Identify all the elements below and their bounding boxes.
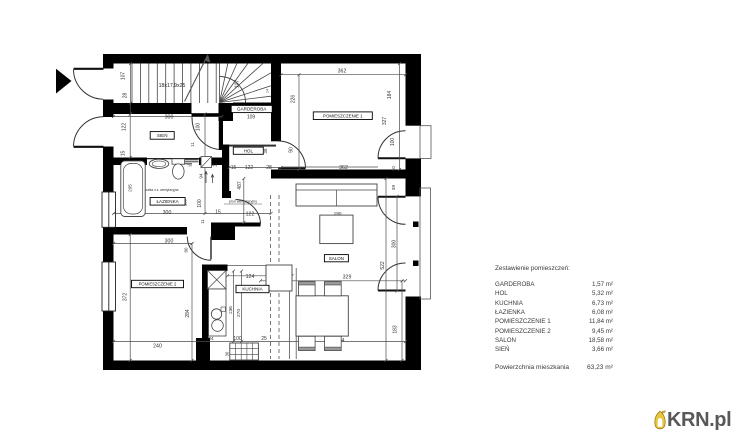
svg-text:107: 107 <box>121 72 127 81</box>
svg-text:POMIESZCZENIE 1: POMIESZCZENIE 1 <box>323 113 363 118</box>
svg-text:28: 28 <box>123 93 129 99</box>
svg-text:487: 487 <box>237 181 243 190</box>
svg-text:122: 122 <box>246 212 255 218</box>
svg-text:124: 124 <box>246 274 255 280</box>
svg-text:39: 39 <box>391 185 396 191</box>
svg-text:SALON: SALON <box>329 256 344 261</box>
svg-text:327: 327 <box>382 117 388 126</box>
svg-text:100: 100 <box>390 138 396 147</box>
svg-text:122: 122 <box>245 165 254 171</box>
svg-text:100: 100 <box>197 199 203 208</box>
svg-text:T98: T98 <box>187 164 192 168</box>
svg-text:28: 28 <box>266 165 272 171</box>
svg-text:205: 205 <box>128 184 133 192</box>
svg-text:107: 107 <box>235 80 241 89</box>
svg-text:44: 44 <box>212 163 217 168</box>
svg-text:kratka o.s. wentylacyjna: kratka o.s. wentylacyjna <box>145 188 179 192</box>
svg-text:300: 300 <box>165 115 174 121</box>
svg-text:329: 329 <box>343 275 352 281</box>
svg-text:100: 100 <box>233 336 242 342</box>
svg-text:pion wentylacyjny: pion wentylacyjny <box>229 200 257 204</box>
svg-text:SIEŃ: SIEŃ <box>157 132 168 138</box>
svg-text:POMIESZCZENIE 2: POMIESZCZENIE 2 <box>139 282 177 287</box>
svg-text:14: 14 <box>265 89 269 93</box>
svg-text:40: 40 <box>391 166 396 172</box>
svg-text:284: 284 <box>185 309 191 318</box>
svg-text:122: 122 <box>122 123 128 132</box>
svg-text:GARDEROBA: GARDEROBA <box>237 107 267 112</box>
svg-text:80: 80 <box>184 247 189 252</box>
svg-text:372: 372 <box>123 293 129 302</box>
svg-text:362: 362 <box>338 69 347 75</box>
svg-text:300: 300 <box>165 239 174 245</box>
svg-text:100: 100 <box>196 123 202 132</box>
svg-text:15: 15 <box>120 151 126 157</box>
svg-text:22,5: 22,5 <box>151 165 157 169</box>
svg-text:300: 300 <box>391 240 397 249</box>
svg-text:90: 90 <box>289 147 295 153</box>
svg-text:HOL: HOL <box>244 148 254 153</box>
svg-text:18x17,9x25: 18x17,9x25 <box>159 83 186 89</box>
svg-text:183: 183 <box>393 325 399 334</box>
svg-text:11: 11 <box>190 142 195 147</box>
svg-text:362: 362 <box>339 165 348 171</box>
svg-text:184: 184 <box>387 91 393 100</box>
svg-text:300: 300 <box>163 210 172 216</box>
svg-text:KUCHNIA: KUCHNIA <box>242 287 262 292</box>
svg-text:25: 25 <box>261 336 267 342</box>
svg-text:270: 270 <box>236 309 242 317</box>
svg-text:24: 24 <box>208 336 214 341</box>
svg-text:ŁAZIENKA: ŁAZIENKA <box>156 199 179 204</box>
svg-text:226: 226 <box>291 95 297 104</box>
svg-text:109: 109 <box>247 115 256 121</box>
svg-text:15: 15 <box>231 165 237 171</box>
svg-text:236: 236 <box>228 306 233 314</box>
svg-text:94: 94 <box>199 173 204 179</box>
svg-text:11: 11 <box>200 219 205 224</box>
svg-text:522: 522 <box>380 261 386 270</box>
svg-text:240: 240 <box>153 344 162 350</box>
svg-text:36: 36 <box>225 351 230 356</box>
svg-text:15: 15 <box>215 210 221 216</box>
